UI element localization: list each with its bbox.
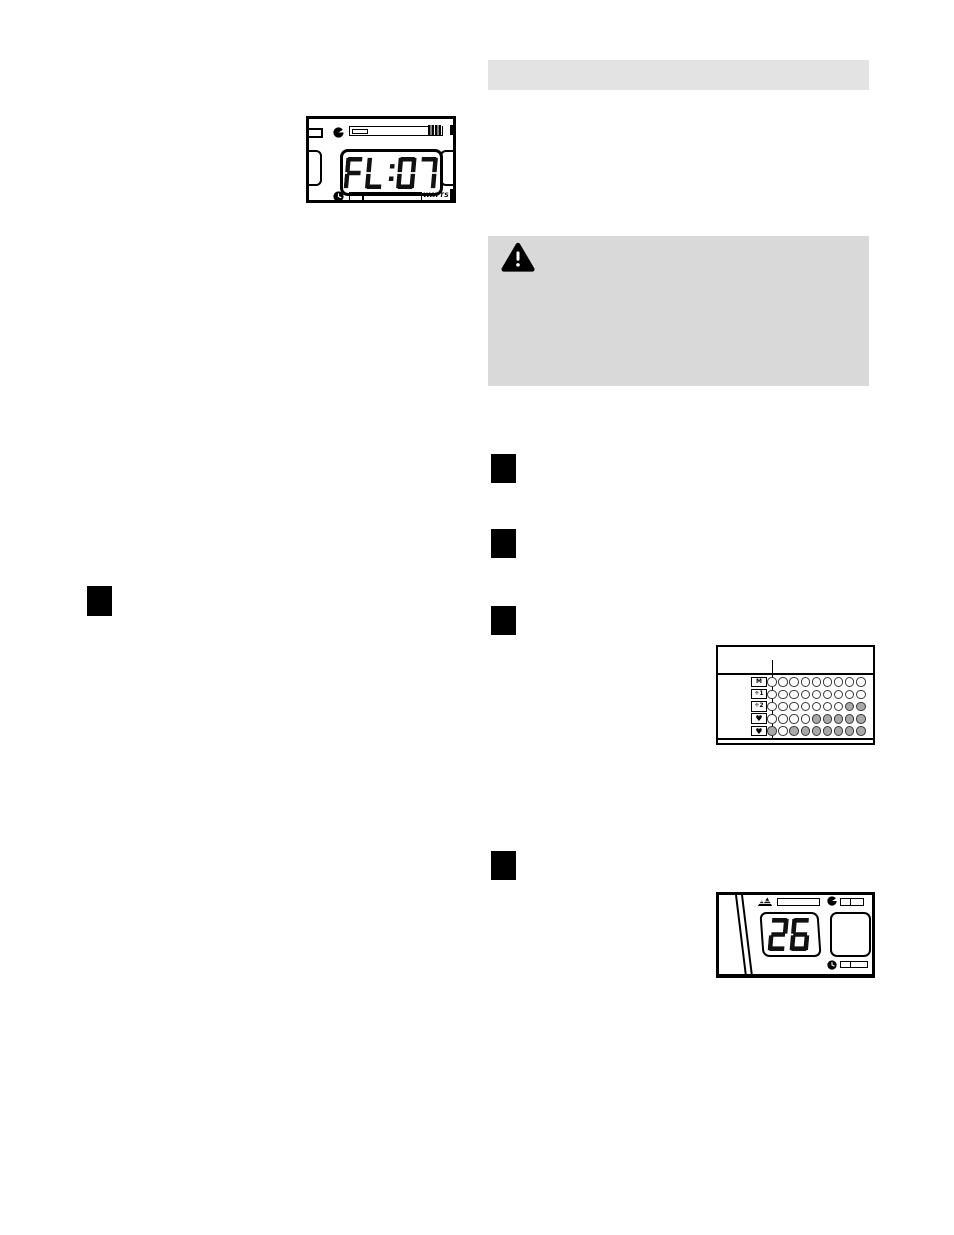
- matrix-dot-empty: [801, 702, 811, 712]
- time-bar-outline: [840, 961, 868, 968]
- matrix-dot-empty: [778, 690, 788, 700]
- step-marker-left: [87, 586, 112, 616]
- clock-icon: [333, 191, 344, 202]
- matrix-dot-filled: [856, 726, 866, 736]
- matrix-dot-empty: [767, 677, 777, 687]
- lcd-value: [343, 157, 439, 189]
- matrix-dot-empty: [823, 702, 833, 712]
- warning-triangle-icon: [501, 242, 535, 273]
- matrix-dot-filled: [767, 726, 777, 736]
- matrix-row-label: ÷2: [751, 701, 767, 712]
- matrix-dot-filled: [856, 714, 866, 724]
- step-marker-3: [491, 606, 516, 635]
- small-display-glyph: [428, 125, 442, 135]
- matrix-dot-empty: [789, 714, 799, 724]
- matrix-dot-filled: [834, 714, 844, 724]
- heart-row-label: ♥: [751, 726, 767, 737]
- matrix-dot-empty: [856, 690, 866, 700]
- matrix-dot-empty: [801, 677, 811, 687]
- bar-tick: [362, 193, 364, 200]
- pie-chart-icon: [333, 127, 344, 138]
- matrix-row-label: M: [751, 677, 767, 688]
- step-marker-2: [491, 529, 516, 558]
- matrix-bottom-line: [718, 738, 873, 740]
- matrix-dot-empty: [767, 702, 777, 712]
- matrix-dot-filled: [801, 726, 811, 736]
- matrix-top-divider: [718, 673, 873, 675]
- speed-bar-outline: [840, 898, 864, 906]
- step-marker-4: [491, 851, 516, 880]
- matrix-dot-filled: [845, 726, 855, 736]
- matrix-dot-filled: [834, 726, 844, 736]
- matrix-dot-empty: [789, 677, 799, 687]
- heart-row-label: ♥: [751, 713, 767, 724]
- section-header-bar: [488, 60, 869, 90]
- partial-display-window-left: [309, 150, 322, 186]
- matrix-dot-empty: [856, 677, 866, 687]
- matrix-dot-empty: [801, 690, 811, 700]
- bar-tick: [850, 962, 851, 967]
- incline-mountain-icon: [756, 897, 774, 906]
- manual-page: WATTS M÷1÷2♥♥: [0, 0, 954, 1235]
- matrix-row-label: ÷1: [751, 689, 767, 700]
- matrix-dot-empty: [767, 714, 777, 724]
- caution-box: [488, 236, 869, 386]
- cropped-element-mark: [450, 125, 453, 135]
- matrix-dot-empty: [789, 702, 799, 712]
- matrix-dot-filled: [845, 702, 855, 712]
- matrix-dot-empty: [778, 714, 788, 724]
- matrix-dot-filled: [789, 726, 799, 736]
- matrix-dot-empty: [834, 690, 844, 700]
- matrix-dot-empty: [834, 702, 844, 712]
- matrix-dot-filled: [812, 714, 822, 724]
- bar-tick: [850, 899, 851, 905]
- cropped-element-mark: [450, 189, 453, 201]
- clock-icon: [827, 960, 837, 970]
- adjacent-display-window: [830, 912, 871, 957]
- incline-display-value-wrap: [766, 917, 815, 951]
- incline-bar-outline: [777, 898, 820, 906]
- matrix-dot-empty: [845, 677, 855, 687]
- matrix-dot-empty: [778, 677, 788, 687]
- matrix-dot-empty: [845, 690, 855, 700]
- matrix-dot-filled: [856, 702, 866, 712]
- matrix-dot-filled: [845, 714, 855, 724]
- matrix-dot-empty: [812, 677, 822, 687]
- pie-chart-icon: [827, 896, 837, 906]
- incline-console-illustration: [716, 892, 875, 978]
- matrix-dot-empty: [789, 690, 799, 700]
- matrix-dot-empty: [812, 690, 822, 700]
- matrix-dot-filled: [812, 726, 822, 736]
- matrix-dot-empty: [767, 690, 777, 700]
- lcd-display-window: [340, 149, 443, 196]
- watts-label: WATTS: [423, 191, 449, 199]
- matrix-dot-filled: [823, 714, 833, 724]
- step-marker-1: [491, 454, 516, 483]
- console-display-illustration: WATTS: [306, 116, 456, 203]
- incline-value: [768, 918, 813, 951]
- matrix-dot-empty: [834, 677, 844, 687]
- matrix-dot-empty: [823, 677, 833, 687]
- matrix-dot-empty: [778, 726, 788, 736]
- partial-bar-outline: [309, 128, 323, 138]
- progress-bar-segment: [352, 129, 368, 134]
- matrix-dot-empty: [778, 702, 788, 712]
- matrix-display-illustration: M÷1÷2♥♥: [716, 645, 875, 745]
- matrix-dot-empty: [823, 690, 833, 700]
- time-bar-outline: [349, 192, 422, 201]
- matrix-dot-empty: [801, 714, 811, 724]
- matrix-dot-empty: [812, 702, 822, 712]
- matrix-dot-filled: [823, 726, 833, 736]
